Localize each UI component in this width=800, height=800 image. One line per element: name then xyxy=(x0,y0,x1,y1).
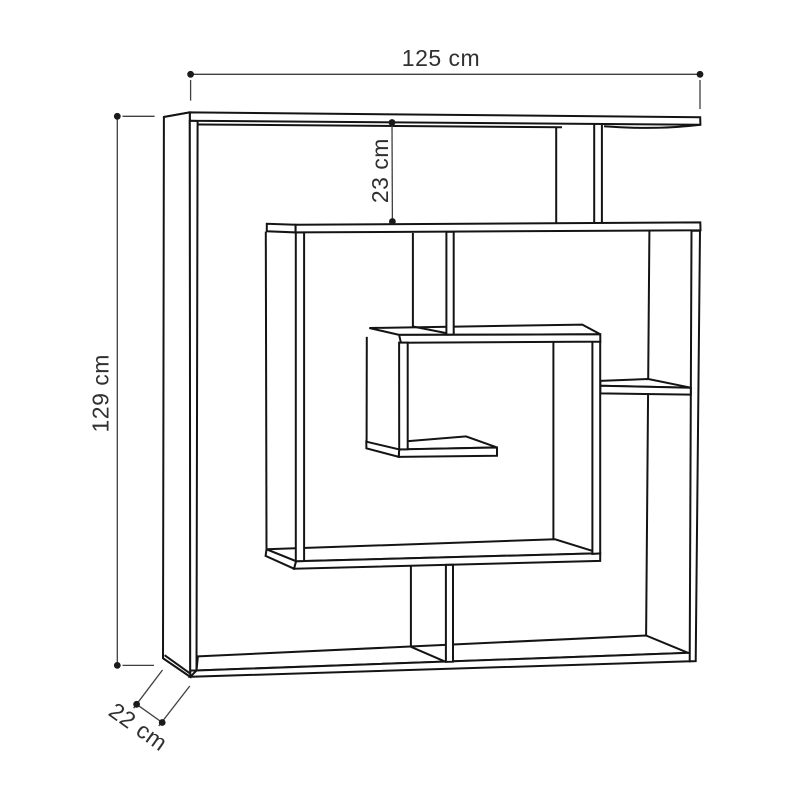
svg-text:129 cm: 129 cm xyxy=(88,354,114,432)
svg-text:125 cm: 125 cm xyxy=(402,45,480,71)
svg-text:23 cm: 23 cm xyxy=(367,138,393,203)
